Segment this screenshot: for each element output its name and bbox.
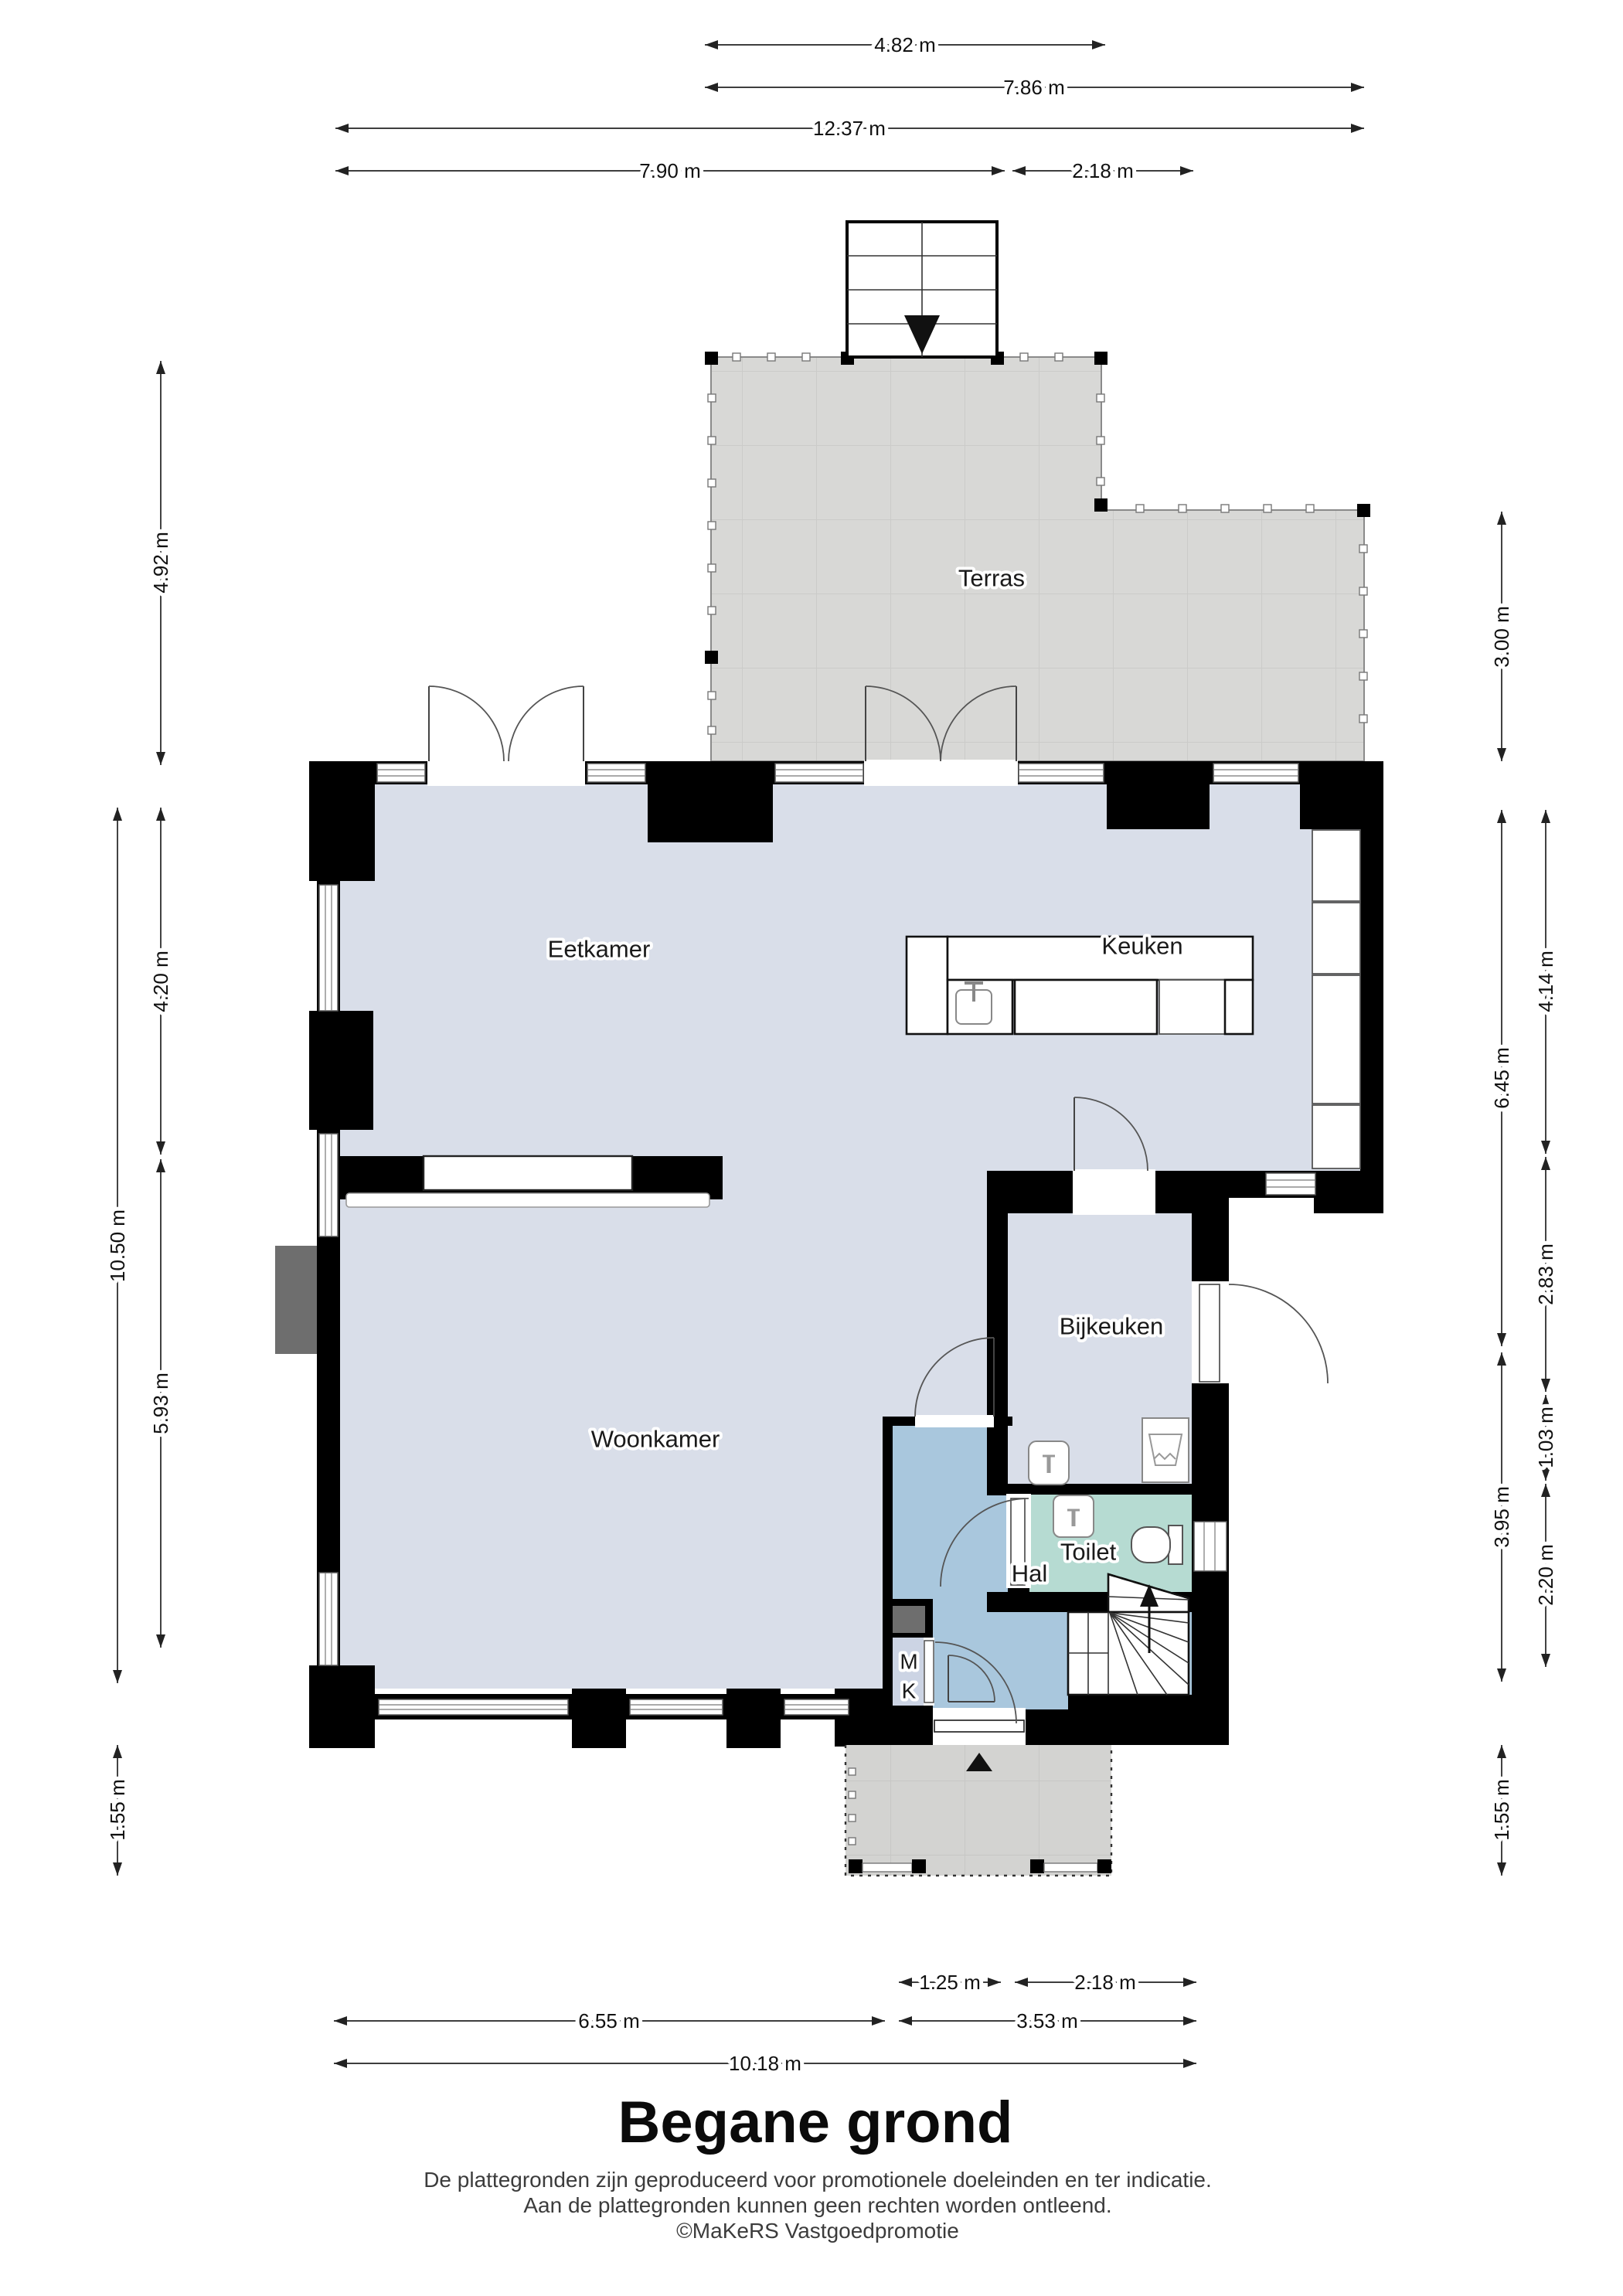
room-label-keuken: Keuken [1101,933,1182,960]
window [319,1573,338,1665]
window [1194,1522,1227,1571]
svg-text:5.93 m: 5.93 m [149,1372,172,1434]
dim-left-492: 4.92 m [149,361,172,765]
dim-right-645: 6.45 m [1490,810,1513,1346]
svg-text:1.55 m: 1.55 m [106,1779,129,1841]
room-label-terras: Terras [958,565,1025,592]
dimensions-bottom: 1.25 m 2.18 m 6.55 m 3.53 m 10.18 m [334,1971,1196,2075]
dim-right-155: 1.55 m [1490,1745,1513,1876]
window [630,1699,723,1715]
dim-right-414: 4.14 m [1534,810,1557,1154]
footer: Begane grond De plattegronden zijn gepro… [424,2090,1212,2243]
dim-bottom-1018: 10.18 m [334,2052,1196,2075]
dim-bottom-353: 3.53 m [899,2009,1196,2032]
disclaimer-line-1: De plattegronden zijn geproduceerd voor … [424,2168,1212,2192]
svg-text:7.90 m: 7.90 m [639,159,701,182]
svg-text:3.53 m: 3.53 m [1016,2009,1078,2032]
utility-sink-icon [1029,1441,1069,1485]
dim-right-395: 3.95 m [1490,1352,1513,1682]
chimney [275,1246,317,1354]
svg-text:4.92 m: 4.92 m [149,532,172,594]
dim-left-155: 1.55 m [106,1745,129,1876]
dim-top-482: 4.82 m [705,33,1105,56]
svg-text:2.83 m: 2.83 m [1534,1243,1557,1305]
kitchen-wall-cabinets [1312,830,1360,1168]
dim-left-1050: 10.50 m [106,808,129,1683]
svg-text:10.18 m: 10.18 m [729,2052,801,2075]
window [775,764,863,782]
svg-text:3.00 m: 3.00 m [1490,606,1513,668]
dim-bottom-218: 2.18 m [1015,1971,1196,1994]
window [1213,764,1298,782]
svg-text:7.86 m: 7.86 m [1003,76,1065,99]
disclaimer-line-2: Aan de plattegronden kunnen geen rechten… [523,2193,1111,2217]
svg-text:1.55 m: 1.55 m [1490,1779,1513,1841]
svg-text:12.37 m: 12.37 m [813,117,886,140]
svg-text:1.25 m: 1.25 m [919,1971,981,1994]
room-label-mk-k: K [902,1679,917,1703]
floorplan-page: Terras Eetkamer Keuken Bijkeuken Woonkam… [0,0,1623,2296]
dim-left-420: 4.20 m [149,808,172,1155]
dim-top-790: 7.90 m [335,159,1005,182]
svg-text:3.95 m: 3.95 m [1490,1486,1513,1548]
dim-top-218: 2.18 m [1012,159,1193,182]
svg-text:1.03 m: 1.03 m [1534,1407,1557,1468]
window [784,1699,849,1715]
svg-text:10.50 m: 10.50 m [106,1209,129,1282]
porch [846,1745,1111,1876]
copyright: ©MaKeRS Vastgoedpromotie [676,2219,959,2243]
room-label-toilet: Toilet [1060,1539,1117,1566]
terras-area [705,352,1370,761]
floorplan-svg: Terras Eetkamer Keuken Bijkeuken Woonkam… [0,0,1623,2296]
dim-right-300: 3.00 m [1490,512,1513,761]
toilet-sink-icon [1053,1495,1094,1537]
dimensions-right: 3.00 m 6.45 m 4.14 m 2.83 m 1.03 m 3.95 … [1490,512,1557,1876]
room-label-hal: Hal [1012,1560,1048,1587]
svg-text:4.20 m: 4.20 m [149,951,172,1012]
dim-right-103: 1.03 m [1534,1395,1557,1481]
svg-text:6.55 m: 6.55 m [578,2009,640,2032]
dim-top-1237: 12.37 m [335,117,1364,140]
window [1019,764,1104,782]
svg-text:6.45 m: 6.45 m [1490,1047,1513,1109]
room-label-bijkeuken: Bijkeuken [1060,1313,1163,1340]
svg-text:4.14 m: 4.14 m [1534,951,1557,1012]
dimensions-top: 4.82 m 7.86 m 12.37 m 7.90 m 2.18 m [335,33,1364,182]
svg-text:2.20 m: 2.20 m [1534,1544,1557,1606]
kitchen-island [907,937,1253,1034]
window [377,764,425,782]
svg-text:4.82 m: 4.82 m [874,33,936,56]
page-title: Begane grond [618,2090,1013,2155]
room-label-mk-m: M [900,1650,917,1674]
dim-right-283: 2.83 m [1534,1157,1557,1392]
window [1266,1173,1315,1195]
dim-bottom-125: 1.25 m [899,1971,1001,1994]
garden-stairs [847,222,997,357]
dim-left-593: 5.93 m [149,1159,172,1648]
dimensions-left: 4.92 m 10.50 m 4.20 m 5.93 m 1.55 m [106,361,172,1876]
window [319,885,338,1011]
room-label-eetkamer: Eetkamer [548,936,651,963]
window [379,1699,568,1715]
dim-top-786: 7.86 m [705,76,1364,99]
window [587,764,645,782]
svg-text:2.18 m: 2.18 m [1072,159,1134,182]
svg-text:2.18 m: 2.18 m [1074,1971,1136,1994]
wc-icon [1131,1526,1182,1564]
meter-box [893,1606,925,1633]
window [319,1134,338,1236]
washing-machine-icon [1142,1418,1189,1482]
room-label-woonkamer: Woonkamer [591,1426,720,1453]
dim-right-220: 2.20 m [1534,1484,1557,1667]
dim-bottom-655: 6.55 m [334,2009,885,2032]
